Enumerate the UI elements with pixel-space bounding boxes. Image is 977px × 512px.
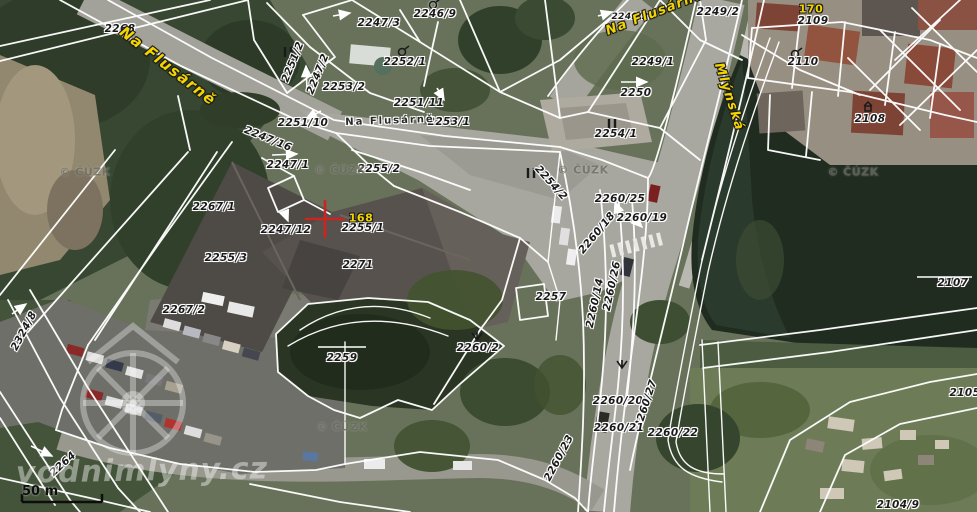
terrain-layer <box>0 0 977 512</box>
map-graphics <box>0 0 977 512</box>
map-canvas[interactable]: 22682247/32246/92249/22249/2210921102251… <box>0 0 977 512</box>
